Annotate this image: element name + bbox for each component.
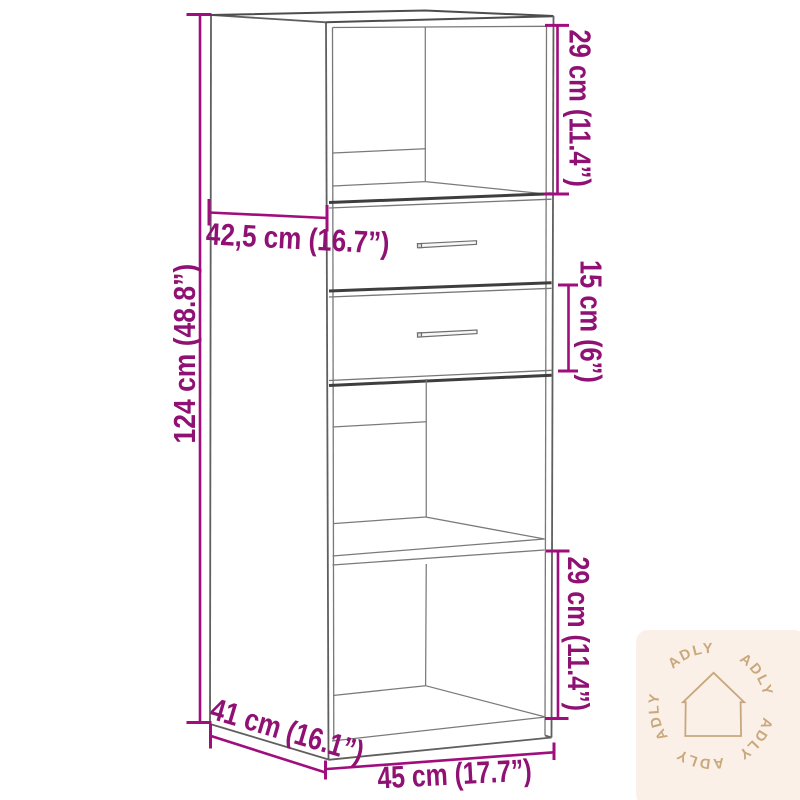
svg-text:15 cm (6”): 15 cm (6”) <box>573 260 608 383</box>
svg-text:42,5 cm (16.7”): 42,5 cm (16.7”) <box>205 217 390 261</box>
svg-text:29 cm (11.4”): 29 cm (11.4”) <box>562 30 597 187</box>
svg-text:124 cm (48.8”): 124 cm (48.8”) <box>168 264 202 444</box>
svg-text:41 cm (16.1”): 41 cm (16.1”) <box>206 692 368 770</box>
svg-text:29 cm (11.4”): 29 cm (11.4”) <box>561 557 596 712</box>
svg-text:45 cm (17.7”): 45 cm (17.7”) <box>377 753 533 795</box>
